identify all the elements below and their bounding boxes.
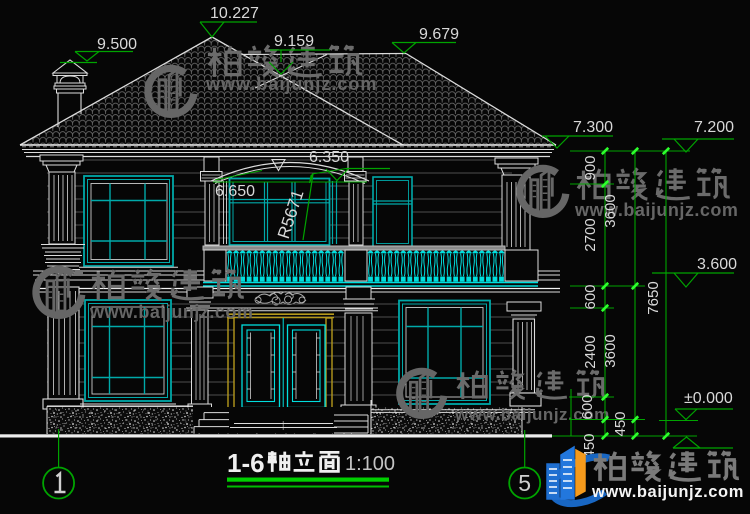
svg-text:2700: 2700 — [582, 218, 599, 251]
svg-text:600: 600 — [582, 284, 599, 309]
svg-text:6.350: 6.350 — [309, 149, 349, 166]
svg-text:7.200: 7.200 — [694, 119, 734, 136]
svg-text:www.baijunjz.com: www.baijunjz.com — [574, 200, 738, 220]
svg-text:6.650: 6.650 — [215, 183, 255, 200]
svg-text:www.baijunjz.com: www.baijunjz.com — [89, 302, 253, 322]
svg-text:9.679: 9.679 — [419, 26, 459, 43]
svg-text:3600: 3600 — [602, 194, 619, 227]
svg-text:www.baijunjz.com: www.baijunjz.com — [205, 74, 377, 94]
svg-text:10.227: 10.227 — [210, 5, 259, 22]
svg-text:9.159: 9.159 — [274, 33, 314, 50]
svg-text:1-6: 1-6 — [227, 448, 265, 478]
svg-text:2400: 2400 — [582, 335, 599, 368]
svg-text:450: 450 — [612, 411, 629, 436]
svg-text:600: 600 — [579, 394, 596, 419]
svg-text:5: 5 — [518, 470, 531, 496]
svg-text:7.300: 7.300 — [573, 119, 613, 136]
svg-text:3.600: 3.600 — [697, 256, 737, 273]
svg-text:7650: 7650 — [645, 281, 662, 314]
svg-text:900: 900 — [582, 155, 599, 180]
svg-text:3600: 3600 — [602, 334, 619, 367]
svg-text:1:100: 1:100 — [345, 453, 395, 475]
svg-text:±0.000: ±0.000 — [684, 390, 733, 407]
svg-text:9.500: 9.500 — [97, 36, 137, 53]
svg-text:www.baijunjz.com: www.baijunjz.com — [591, 483, 744, 501]
